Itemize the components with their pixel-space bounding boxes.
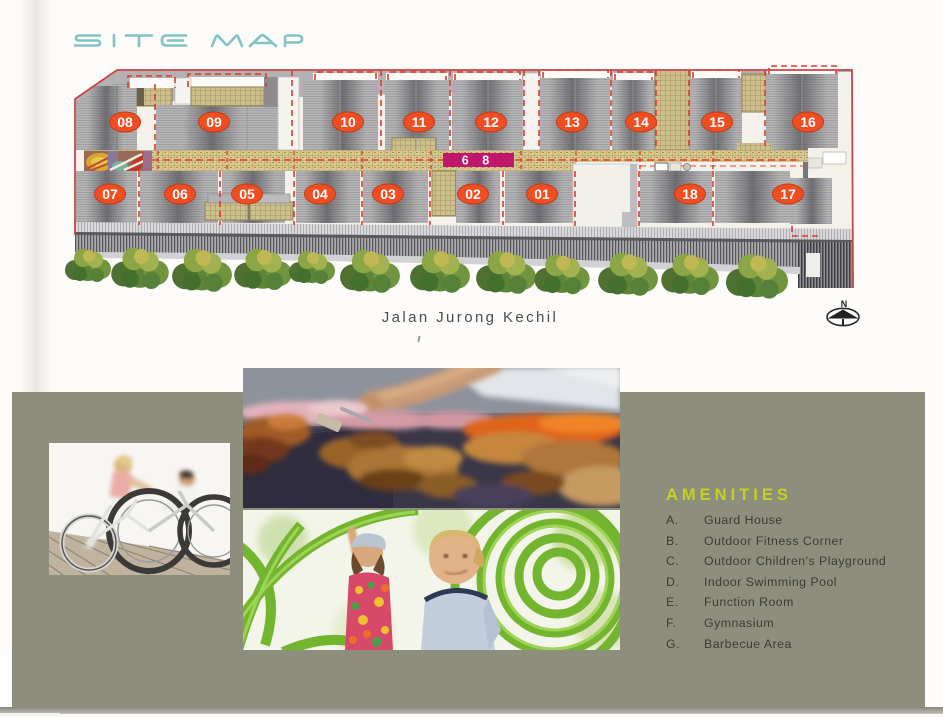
svg-text:04: 04 [312, 186, 328, 202]
svg-text:18: 18 [682, 186, 698, 202]
svg-text:07: 07 [102, 186, 118, 202]
svg-text:11: 11 [412, 114, 427, 130]
svg-text:10: 10 [340, 114, 356, 130]
svg-text:13: 13 [564, 114, 580, 130]
svg-text:01: 01 [534, 186, 550, 202]
svg-text:Jalan Jurong Kechil: Jalan Jurong Kechil [382, 309, 559, 326]
svg-text:12: 12 [483, 114, 499, 130]
svg-text:6 8: 6 8 [462, 154, 494, 168]
svg-text:16: 16 [800, 114, 816, 130]
svg-text:02: 02 [465, 186, 481, 202]
svg-text:05: 05 [239, 186, 255, 202]
svg-text:15: 15 [709, 114, 725, 130]
svg-text:08: 08 [117, 114, 133, 130]
svg-text:N: N [841, 299, 848, 309]
svg-text:14: 14 [633, 114, 649, 130]
svg-text:06: 06 [172, 186, 188, 202]
svg-text:17: 17 [780, 186, 796, 202]
svg-text:03: 03 [380, 186, 396, 202]
svg-text:09: 09 [206, 114, 222, 130]
